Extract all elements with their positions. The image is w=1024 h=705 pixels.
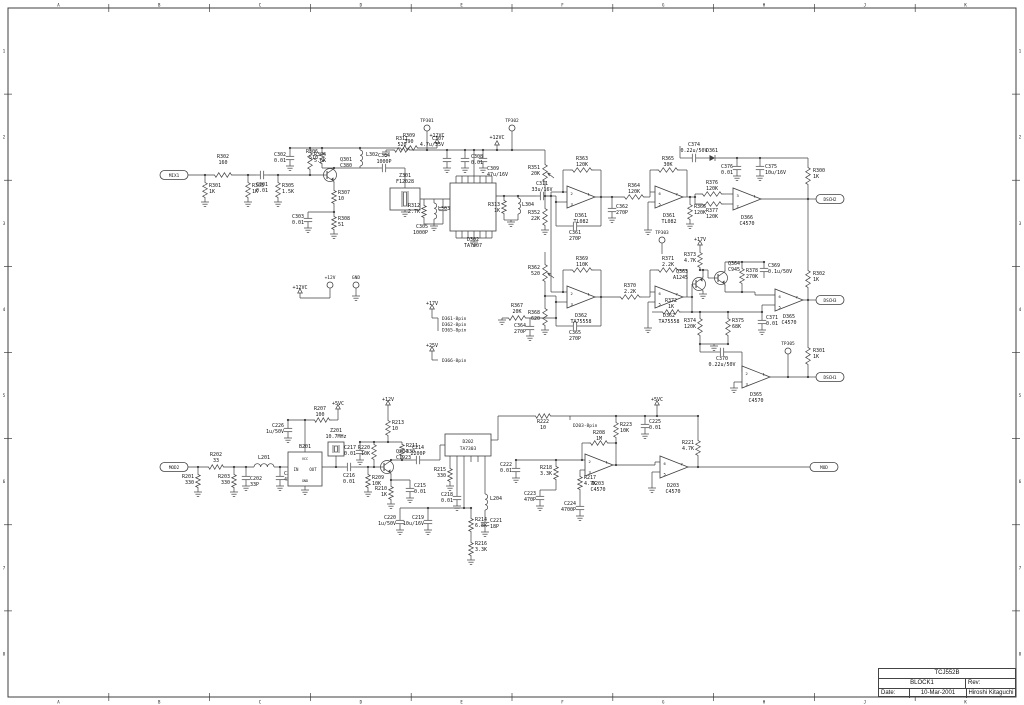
supply-+17V-n: +17V: [426, 301, 438, 314]
svg-text:H: H: [763, 3, 766, 8]
connector-MOD: MOD: [810, 463, 838, 472]
svg-text:7: 7: [1019, 565, 1022, 570]
part-R210: R2101K: [375, 484, 393, 502]
svg-text:5: 5: [779, 305, 781, 310]
part-C219: C21910u/16V: [403, 515, 432, 528]
svg-text:C: C: [259, 3, 262, 8]
svg-text:A: A: [57, 3, 60, 8]
schematic-svg: AABBCCDDEEFFGGHHJJKK1122334455667788MIX1…: [0, 0, 1024, 705]
testpoint-TP303: TP303: [655, 230, 669, 243]
part-R375: R37568K: [726, 316, 744, 338]
part-C225: C2250.01: [641, 419, 661, 432]
svg-text:+12V: +12V: [325, 275, 336, 281]
svg-text:5: 5: [659, 302, 661, 307]
note-B201-out: OUT: [309, 467, 317, 472]
part-R308: R30851: [332, 214, 350, 232]
part-R220: R22010K: [358, 442, 376, 462]
svg-text:270K: 270K: [746, 274, 758, 280]
connector-MOD2: MOD2: [160, 463, 188, 472]
connector-DSCH1: DSCH1: [816, 373, 844, 382]
svg-text:68K: 68K: [732, 324, 741, 330]
svg-text:MIX1: MIX1: [169, 173, 180, 179]
svg-text:520: 520: [397, 142, 406, 148]
part-R374: R374120K: [684, 316, 702, 338]
svg-text:0.01: 0.01: [471, 160, 483, 166]
svg-text:1K: 1K: [813, 174, 819, 180]
part-R301b: R3011K: [806, 345, 825, 367]
svg-text:L304: L304: [522, 202, 534, 208]
connector-DSCH3: DSCH3: [816, 296, 844, 305]
supply-+5VC-b: +5VC: [651, 397, 663, 410]
title-block-row: BLOCK1 Rev:: [879, 679, 1015, 689]
part-C374: C3740.22u/50V: [680, 142, 707, 162]
note-note-d203: D203-8pin: [573, 423, 598, 429]
svg-text:C4570: C4570: [665, 489, 680, 495]
svg-text:0.01: 0.01: [441, 498, 453, 504]
part-L204: L204: [485, 494, 502, 510]
svg-text:3: 3: [746, 382, 748, 387]
svg-text:10K: 10K: [620, 428, 629, 434]
svg-text:8: 8: [3, 651, 6, 656]
svg-text:D366-8pin: D366-8pin: [442, 358, 467, 364]
svg-text:D203-8pin: D203-8pin: [573, 423, 598, 429]
part-C216: C2160.01: [343, 463, 355, 485]
svg-text:520: 520: [531, 271, 540, 277]
opamp-D365b: 231D365C4570: [742, 366, 770, 404]
note-note-supplies-1: D361-8pinD362-8pinD365-8pin: [442, 316, 467, 334]
part-R301: R3011K: [203, 180, 221, 200]
part-C369: C3690.1u/50V: [760, 263, 792, 276]
supply-+25V: +25V: [426, 343, 438, 356]
part-Q363: Q363A1245: [673, 269, 706, 292]
svg-text:E: E: [460, 3, 463, 8]
svg-text:TP302: TP302: [505, 118, 519, 124]
svg-text:10.7MHz: 10.7MHz: [325, 434, 346, 440]
svg-text:7: 7: [676, 292, 678, 297]
svg-text:2: 2: [1019, 135, 1022, 140]
svg-text:TL082: TL082: [573, 219, 588, 225]
note-B201-label: B201: [299, 444, 311, 450]
svg-text:D361: D361: [706, 148, 718, 154]
svg-text:0.01: 0.01: [292, 220, 304, 226]
svg-text:1K: 1K: [494, 208, 500, 214]
svg-text:510: 510: [309, 155, 318, 161]
svg-text:DSCH1: DSCH1: [824, 375, 837, 381]
svg-text:2: 2: [3, 135, 6, 140]
svg-text:F: F: [561, 3, 564, 8]
part-C370: C3700.22u/50V: [708, 348, 735, 368]
opamp-D365a: 657D365C4570: [775, 289, 803, 326]
svg-text:2200P: 2200P: [410, 451, 425, 457]
doc-model: TCJ552B: [934, 670, 959, 676]
svg-text:J: J: [864, 700, 866, 705]
part-C376: C3760.01: [721, 162, 741, 176]
svg-text:TL082: TL082: [661, 219, 676, 225]
opamp-D361b: 657D361TL082: [655, 186, 683, 225]
svg-text:4: 4: [3, 307, 6, 312]
svg-text:1M: 1M: [596, 436, 602, 442]
svg-text:DSCH3: DSCH3: [824, 298, 837, 304]
part-C371: C3710.01: [758, 315, 778, 328]
svg-text:1K: 1K: [668, 304, 674, 310]
svg-text:3: 3: [3, 221, 6, 226]
svg-text:+5VC: +5VC: [332, 401, 344, 407]
testpoint-TP-12V: +12V: [325, 275, 336, 288]
svg-text:VCC: VCC: [302, 457, 308, 461]
title-model-row: TCJ552B: [879, 669, 1015, 679]
svg-text:0.01: 0.01: [343, 479, 355, 485]
svg-text:GND: GND: [352, 275, 360, 281]
svg-text:5: 5: [1019, 393, 1022, 398]
svg-text:10: 10: [338, 196, 344, 202]
svg-text:J: J: [864, 3, 866, 8]
svg-text:3: 3: [737, 193, 739, 198]
svg-text:33P: 33P: [250, 482, 259, 488]
svg-text:270P: 270P: [616, 210, 628, 216]
svg-text:0.01: 0.01: [649, 425, 661, 431]
part-R307: R30710: [332, 188, 350, 206]
part-R365: R36530K: [656, 156, 680, 172]
svg-text:3: 3: [1019, 221, 1022, 226]
title-block: TCJ552B BLOCK1 Rev: Date: 10-Mar-2001 Hi…: [878, 668, 1016, 697]
title-date-row: Date: 10-Mar-2001 Hiroshi Kitaguchi: [879, 689, 1015, 698]
svg-text:7: 7: [681, 462, 683, 467]
part-R367: R36720K: [506, 303, 528, 320]
opamp-D203b: 657D203C4570: [660, 456, 688, 495]
testpoint-TP302: TP302: [505, 118, 519, 131]
svg-text:47u/16V: 47u/16V: [487, 172, 508, 178]
part-C308: C3080.01: [461, 154, 483, 166]
part-R202: R20233: [206, 452, 226, 469]
svg-text:33u/16V: 33u/16V: [531, 187, 552, 193]
svg-text:3: 3: [571, 202, 573, 207]
date-value: 10-Mar-2001: [910, 689, 967, 698]
svg-text:C4570: C4570: [739, 221, 754, 227]
testpoint-TP-GND: GND: [352, 275, 360, 288]
svg-text:+17V: +17V: [426, 301, 438, 307]
part-R370: R3702.2K: [618, 283, 642, 299]
svg-text:7: 7: [796, 295, 798, 300]
svg-text:3.3K: 3.3K: [475, 547, 487, 553]
part-R376: R376120K: [700, 180, 724, 196]
svg-text:C4570: C4570: [781, 320, 796, 326]
svg-text:2: 2: [746, 371, 748, 376]
part-C222: C2220.01: [500, 462, 520, 476]
svg-text:270P: 270P: [569, 336, 581, 342]
svg-text:2.7K: 2.7K: [408, 209, 420, 215]
supply-+17V-a: +17V: [694, 237, 706, 250]
svg-text:1K: 1K: [813, 354, 819, 360]
svg-text:0.22u/50V: 0.22u/50V: [708, 362, 735, 368]
svg-text:MOD2: MOD2: [169, 465, 180, 471]
sheet-frame: AABBCCDDEEFFGGHHJJKK1122334455667788: [3, 3, 1022, 705]
part-C218: C2180.01: [441, 492, 461, 504]
part-R364: R364120K: [622, 183, 646, 199]
svg-text:+12VC: +12VC: [489, 135, 504, 141]
part-R208: R2081M: [588, 430, 610, 445]
part-L302: L302: [360, 150, 378, 166]
supply-+5VC-a: +5VC: [332, 401, 344, 414]
svg-text:620: 620: [531, 316, 540, 322]
svg-text:B: B: [158, 3, 161, 8]
svg-text:C380: C380: [340, 163, 352, 169]
svg-text:D: D: [360, 700, 363, 705]
svg-text:D202: D202: [462, 439, 473, 445]
svg-text:270P: 270P: [569, 236, 581, 242]
svg-text:0.22u/50V: 0.22u/50V: [680, 148, 707, 154]
svg-text:7: 7: [676, 192, 678, 197]
svg-text:30K: 30K: [663, 162, 672, 168]
part-R312: R3122.7K: [408, 203, 426, 220]
part-R300: R3001K: [806, 165, 825, 187]
svg-text:2: 2: [589, 459, 591, 464]
svg-text:DSCH2: DSCH2: [824, 197, 837, 203]
svg-text:110K: 110K: [576, 262, 588, 268]
svg-text:+5VC: +5VC: [651, 397, 663, 403]
opamp-D203a: 231D203C4570: [585, 454, 613, 493]
opamp-D366: 321D366C4570: [733, 188, 761, 227]
svg-text:0.01: 0.01: [414, 489, 426, 495]
svg-text:0.01: 0.01: [500, 468, 512, 474]
part-C301: C3010.01: [256, 171, 268, 194]
svg-text:A1245: A1245: [673, 275, 688, 281]
svg-text:4.7K: 4.7K: [682, 446, 694, 452]
svg-text:C1923: C1923: [396, 455, 411, 461]
supply-+12VC-b: +12VC: [489, 135, 504, 150]
part-C202: C20233P: [242, 472, 262, 488]
svg-text:B: B: [158, 700, 161, 705]
svg-text:3: 3: [589, 470, 591, 475]
supply-+12V: +12V: [382, 397, 394, 410]
part-C214: C2142200P: [410, 445, 425, 464]
svg-text:TA75558: TA75558: [658, 319, 679, 325]
part-R207: R207100: [312, 406, 332, 422]
part-R213: R21310: [386, 418, 404, 438]
svg-text:+12V: +12V: [382, 397, 394, 403]
part-R362: R362520: [528, 262, 554, 284]
svg-text:1u/50V: 1u/50V: [378, 521, 396, 527]
svg-text:270P: 270P: [514, 329, 526, 335]
svg-text:1000P: 1000P: [376, 159, 391, 165]
svg-text:MOD: MOD: [820, 465, 828, 471]
svg-text:120K: 120K: [706, 214, 718, 220]
svg-text:1: 1: [3, 49, 6, 54]
part-C311: C31133u/16V: [531, 181, 552, 200]
svg-text:B201: B201: [299, 444, 311, 450]
testpoint-TP301: TP301: [420, 118, 434, 131]
part-R363: R363120K: [570, 156, 594, 172]
testpoint-TP305: TP305: [781, 341, 795, 354]
svg-text:3.3K: 3.3K: [540, 471, 552, 477]
note-B201-in: IN: [294, 467, 299, 472]
svg-text:TP303: TP303: [655, 230, 669, 236]
part-C364: C364270P: [514, 322, 534, 335]
svg-text:F: F: [561, 700, 564, 705]
part-R369: R369110K: [570, 256, 594, 272]
svg-text:G: G: [662, 3, 665, 8]
svg-text:0.01: 0.01: [274, 158, 286, 164]
part-R378: R378270K: [740, 266, 758, 286]
svg-text:120K: 120K: [706, 186, 718, 192]
supply-+12VC-m: +12VC: [292, 285, 307, 298]
svg-text:C945: C945: [728, 267, 740, 273]
part-R305: R3051.5K: [276, 180, 294, 200]
svg-text:TA7407: TA7407: [464, 243, 482, 249]
svg-text:330: 330: [437, 473, 446, 479]
svg-text:H: H: [763, 700, 766, 705]
part-C309: C30947u/16V: [479, 154, 508, 178]
svg-text:TA7303: TA7303: [460, 446, 477, 452]
svg-text:1u/50V: 1u/50V: [266, 429, 284, 435]
svg-text:100: 100: [315, 412, 324, 418]
svg-text:2.2K: 2.2K: [624, 289, 636, 295]
svg-text:1: 1: [1019, 49, 1022, 54]
part-R216: R2163.3K: [469, 540, 487, 558]
part-R373: R3734.7K: [684, 250, 702, 270]
svg-text:G: G: [662, 700, 665, 705]
svg-text:1K: 1K: [381, 492, 387, 498]
svg-text:0.1u/50V: 0.1u/50V: [768, 269, 792, 275]
date-label: Date:: [879, 689, 910, 698]
part-C304: C3041000P: [376, 153, 391, 172]
svg-text:10u/16V: 10u/16V: [765, 170, 786, 176]
part-C302: C3020.01: [274, 152, 294, 164]
svg-text:L204: L204: [490, 496, 502, 502]
svg-text:20K: 20K: [512, 309, 521, 315]
part-C220: C2201u/50V: [378, 515, 404, 528]
svg-text:120K: 120K: [694, 210, 706, 216]
svg-text:51: 51: [338, 222, 344, 228]
svg-text:18P: 18P: [490, 524, 499, 530]
svg-text:C: C: [259, 700, 262, 705]
svg-text:K: K: [964, 700, 967, 705]
part-C375: C37510u/16V: [756, 162, 786, 176]
svg-text:C4570: C4570: [590, 487, 605, 493]
svg-text:5: 5: [659, 202, 661, 207]
svg-text:0.01: 0.01: [721, 170, 733, 176]
svg-text:0.01: 0.01: [256, 188, 268, 194]
svg-text:1000P: 1000P: [413, 230, 428, 236]
svg-text:2.2K: 2.2K: [662, 262, 674, 268]
svg-text:120K: 120K: [628, 189, 640, 195]
opamp-D361a: 231D361TL082: [567, 186, 595, 225]
svg-text:+17V: +17V: [694, 237, 706, 243]
svg-text:L201: L201: [258, 455, 270, 461]
author-name: Hiroshi Kitaguchi: [967, 689, 1015, 698]
part-Q364: Q364C945: [714, 261, 740, 286]
svg-text:A: A: [57, 700, 60, 705]
svg-text:470P: 470P: [524, 497, 536, 503]
svg-text:120K: 120K: [576, 162, 588, 168]
svg-text:1.5K: 1.5K: [282, 189, 294, 195]
connector-DSCH2: DSCH2: [816, 195, 844, 204]
svg-text:TP301: TP301: [420, 118, 434, 124]
part-R223: R22310K: [614, 420, 632, 440]
svg-text:4700P: 4700P: [561, 507, 576, 513]
svg-text:D361-8pin: D361-8pin: [442, 316, 467, 322]
svg-text:4.7u/35V: 4.7u/35V: [420, 142, 444, 148]
svg-text:IN: IN: [294, 467, 299, 472]
part-R218: R2183.3K: [540, 464, 558, 482]
svg-text:TP305: TP305: [781, 341, 795, 347]
part-R215: R215330: [434, 466, 452, 484]
svg-text:3: 3: [571, 302, 573, 307]
schematic-sheet: AABBCCDDEEFFGGHHJJKK1122334455667788MIX1…: [0, 0, 1024, 705]
svg-text:10u/16V: 10u/16V: [403, 521, 424, 527]
svg-text:22K: 22K: [531, 216, 540, 222]
svg-text:0.01: 0.01: [766, 321, 778, 327]
part-Q301: Q301C380: [323, 157, 352, 183]
part-C226: C2261u/50V: [266, 423, 292, 436]
part-R214: R2146.8K: [469, 516, 487, 534]
svg-text:33: 33: [213, 458, 219, 464]
part-R221: R2214.7K: [682, 438, 700, 458]
svg-text:120K: 120K: [684, 324, 696, 330]
svg-text:330: 330: [221, 480, 230, 486]
svg-text:4: 4: [1019, 307, 1022, 312]
svg-text:2: 2: [737, 204, 739, 209]
svg-text:8: 8: [1019, 651, 1022, 656]
ic-D202: D202TA7303: [445, 434, 491, 456]
part-C362: C362270P: [608, 204, 628, 216]
svg-text:6: 6: [3, 479, 6, 484]
rev-label: Rev:: [966, 679, 1015, 688]
svg-text:D: D: [360, 3, 363, 8]
svg-text:2: 2: [571, 191, 573, 196]
svg-text:160: 160: [218, 160, 227, 166]
svg-text:F12028: F12028: [396, 179, 414, 185]
part-C224: C2244700P: [561, 501, 584, 514]
svg-text:D365-8pin: D365-8pin: [442, 328, 467, 334]
part-D361d: D361: [706, 148, 718, 161]
note-B201-vcc: VCC: [302, 457, 308, 461]
svg-text:7: 7: [3, 565, 6, 570]
svg-text:0.01: 0.01: [344, 451, 356, 457]
svg-text:+25V: +25V: [426, 343, 438, 349]
part-R222: R22210: [533, 414, 553, 431]
part-R302b: R3021K: [806, 268, 825, 290]
svg-text:C4570: C4570: [748, 398, 763, 404]
svg-text:L303: L303: [438, 206, 450, 212]
svg-text:4.7K: 4.7K: [684, 258, 696, 264]
svg-text:10: 10: [392, 426, 398, 432]
part-R368: R368620: [528, 306, 547, 328]
opamp-D362a: 231D362TA75558: [567, 286, 595, 325]
svg-text:D362-8pin: D362-8pin: [442, 322, 467, 328]
connector-MIX1: MIX1: [160, 171, 188, 180]
ic-D302: D302TA7407: [450, 183, 496, 249]
part-C223: C223470P: [524, 491, 544, 504]
part-C215: C2150.01: [406, 483, 426, 496]
svg-text:1K: 1K: [813, 277, 819, 283]
svg-text:10: 10: [540, 425, 546, 431]
svg-text:+12VC: +12VC: [292, 285, 307, 291]
part-R352: R35222K: [528, 206, 547, 228]
svg-text:OUT: OUT: [309, 467, 317, 472]
part-L201: L201: [254, 455, 274, 467]
sheet-name: BLOCK1: [879, 679, 966, 688]
svg-text:5: 5: [664, 472, 666, 477]
note-B201-gnd: GND: [302, 479, 308, 483]
svg-text:K: K: [964, 3, 967, 8]
svg-text:1K: 1K: [209, 189, 215, 195]
svg-text:6: 6: [1019, 479, 1022, 484]
part-R203: R203330: [218, 472, 236, 490]
svg-text:330: 330: [185, 480, 194, 486]
part-C303: C3030.01: [292, 214, 312, 226]
svg-text:5: 5: [3, 393, 6, 398]
svg-text:2: 2: [571, 291, 573, 296]
